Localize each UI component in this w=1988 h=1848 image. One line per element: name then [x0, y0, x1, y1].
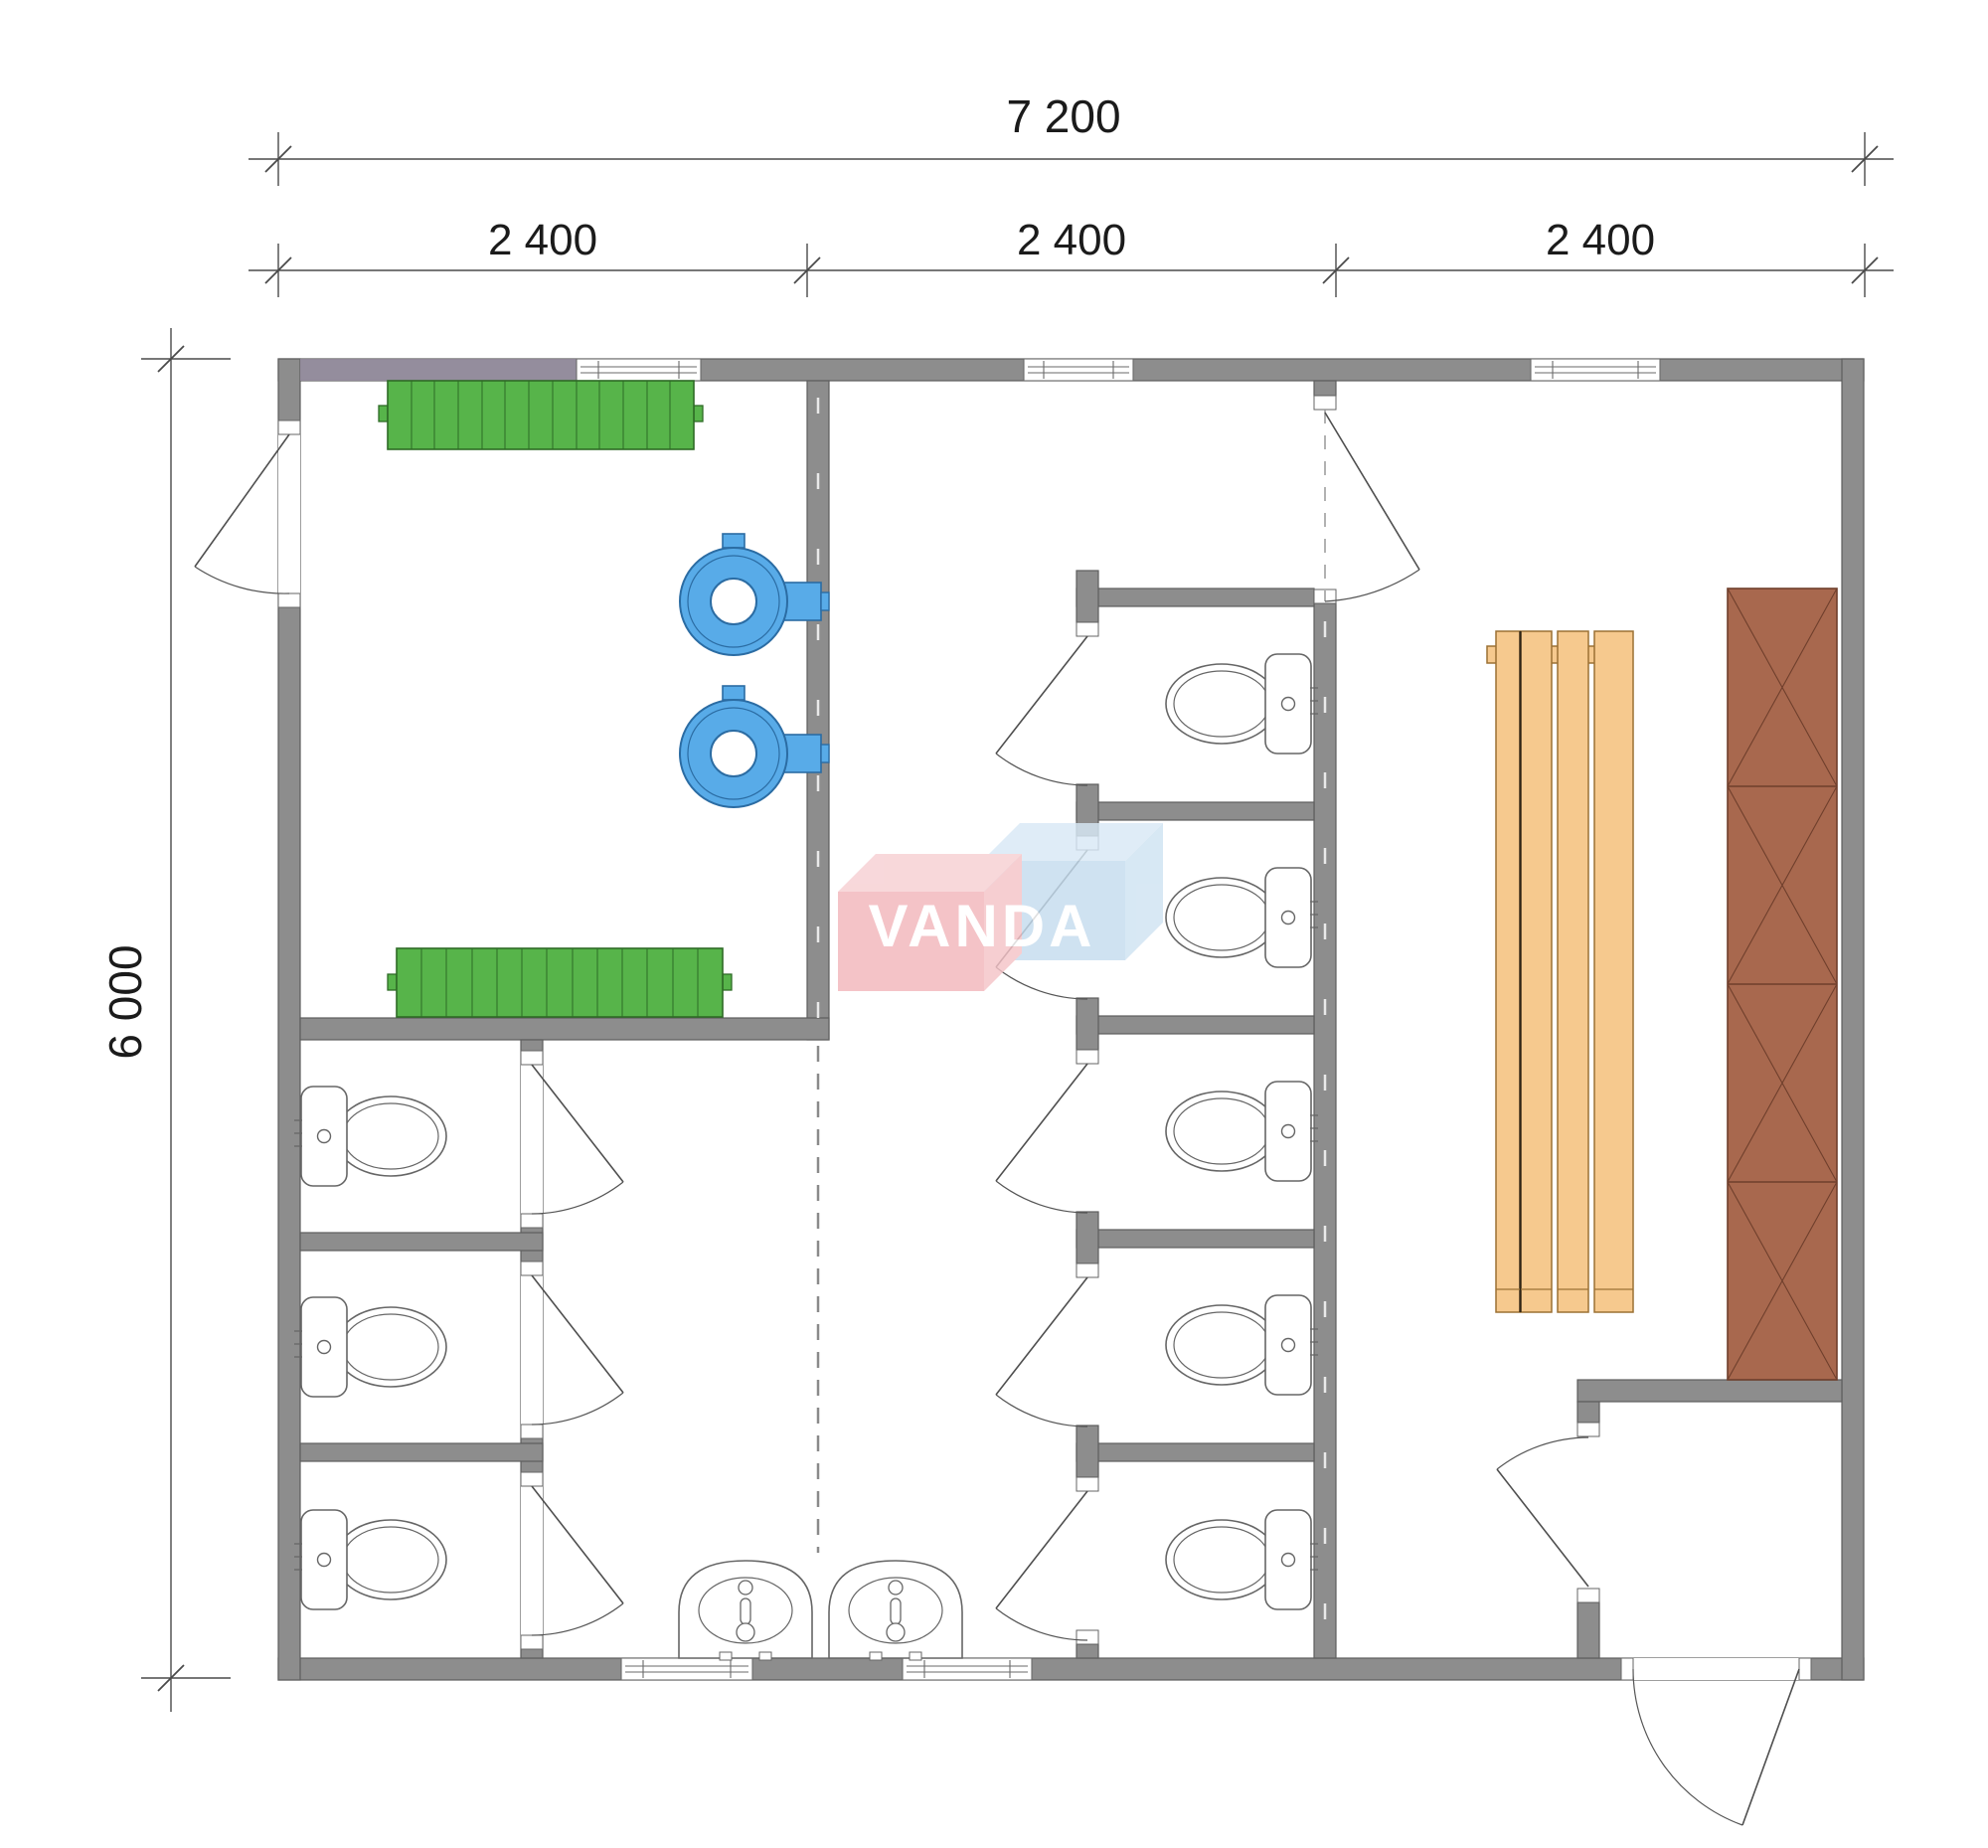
- window-top-right: [1531, 359, 1660, 381]
- toilet-symbol: [1166, 654, 1318, 754]
- door-swing: [1325, 413, 1419, 601]
- divider-wall-right: [1314, 603, 1336, 1658]
- dimension-label-module-1: 2 400: [488, 216, 597, 264]
- toilet-symbol: [1166, 1082, 1318, 1181]
- door-swing: [996, 1277, 1087, 1427]
- stall-partition: [1077, 1443, 1314, 1461]
- door-swing: [996, 636, 1087, 785]
- stall-partition: [1077, 588, 1314, 606]
- vanda-logo-text: VANDA: [869, 893, 1096, 959]
- dimension-label-total-height: 6 000: [99, 944, 151, 1059]
- toilet-symbol: [1166, 1510, 1318, 1609]
- toilet-symbol: [294, 1297, 446, 1397]
- toilet-symbol: [1166, 1295, 1318, 1395]
- slatted-bench-green: [388, 948, 732, 1017]
- door-swing: [532, 1275, 623, 1425]
- top-wall-tint: [300, 359, 577, 381]
- sink-symbol: [679, 1561, 812, 1660]
- stall-front-stub: [1077, 571, 1098, 622]
- divider-wall-right-stub: [1314, 381, 1336, 396]
- vestibule-north-wall: [1577, 1380, 1842, 1402]
- vestibule-west-wall: [1577, 1402, 1599, 1423]
- dimension-label-module-3: 2 400: [1546, 216, 1655, 264]
- stall-front-stub: [1077, 1644, 1098, 1658]
- floor-plan-canvas: 7 200 2 400 2 400 2 400 6 000 VANDA: [0, 0, 1988, 1848]
- window-bottom-left: [621, 1658, 752, 1680]
- toilet-symbol: [1166, 868, 1318, 967]
- stall-partition: [1077, 1230, 1314, 1248]
- door-swing: [532, 1065, 623, 1214]
- door-swing: [996, 1491, 1087, 1640]
- vestibule-west-wall: [1577, 1602, 1599, 1658]
- vanda-watermark: VANDA: [838, 823, 1163, 991]
- door-swing: [996, 1064, 1087, 1213]
- stall-front-stub: [1077, 998, 1098, 1050]
- door-swing: [1497, 1437, 1588, 1587]
- dimension-label-module-2: 2 400: [1017, 216, 1126, 264]
- slatted-bench-green: [379, 381, 703, 449]
- door-swing: [1633, 1669, 1799, 1825]
- stall-partition: [300, 1233, 543, 1251]
- right-exterior-wall: [1842, 359, 1864, 1680]
- window-bottom-right: [903, 1658, 1032, 1680]
- stall-front-stub: [1077, 1212, 1098, 1263]
- window-top-middle: [1024, 359, 1133, 381]
- dimension-label-total-width: 7 200: [1006, 90, 1120, 142]
- stall-partition: [1077, 1016, 1314, 1034]
- window-top-left: [577, 359, 701, 381]
- door-swing: [195, 434, 289, 593]
- floor-plan-svg: 7 200 2 400 2 400 2 400 6 000 VANDA: [0, 0, 1988, 1848]
- stall-partition: [1077, 802, 1314, 820]
- toilet-symbol: [294, 1510, 446, 1609]
- stall-front-stub: [1077, 1426, 1098, 1477]
- stall-partition: [300, 1443, 543, 1461]
- door-swing: [532, 1486, 623, 1635]
- locker-cabinet: [1728, 588, 1837, 1380]
- toilet-symbol: [294, 1087, 446, 1186]
- sink-symbol: [829, 1561, 962, 1660]
- bench-orange: [1487, 631, 1633, 1312]
- left-room-south-wall: [300, 1018, 829, 1040]
